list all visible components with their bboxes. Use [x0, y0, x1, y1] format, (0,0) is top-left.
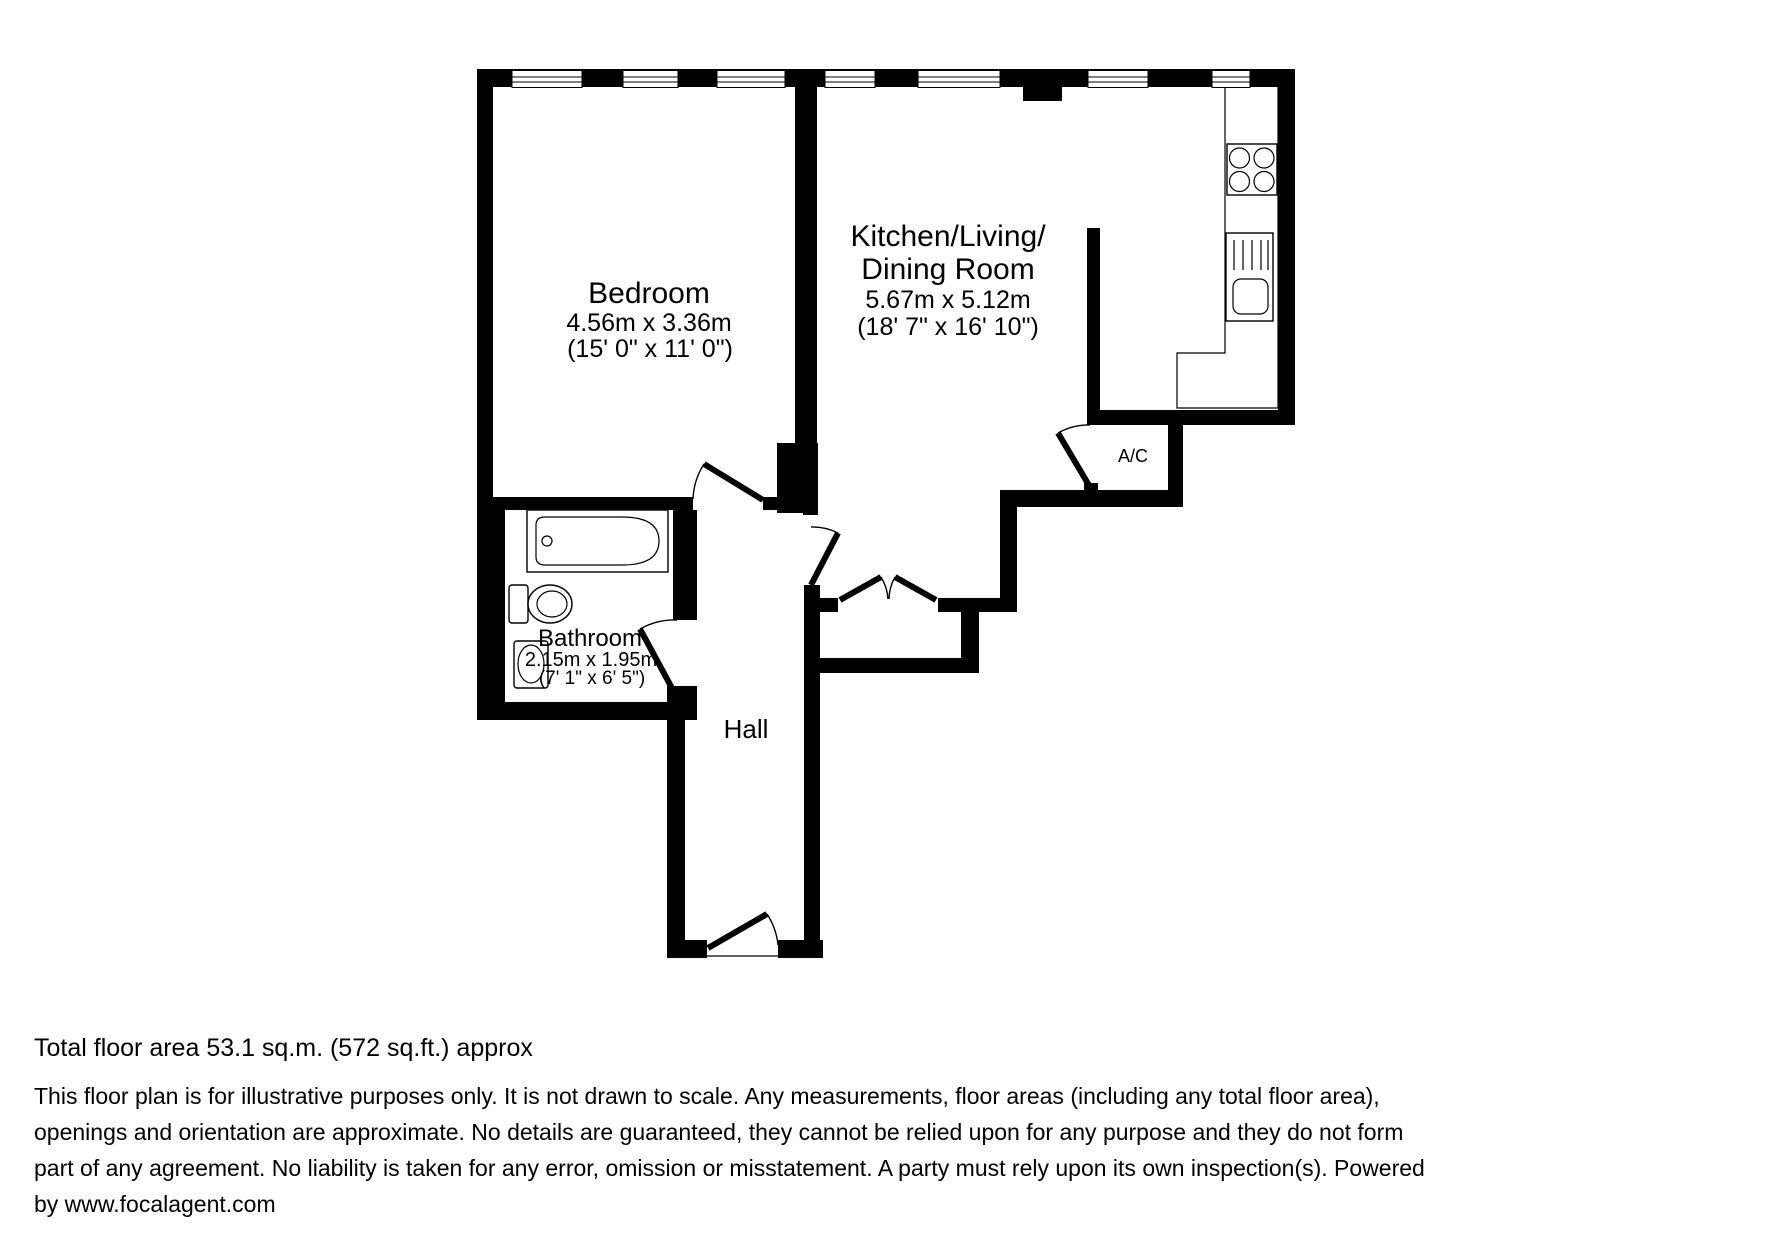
kitchen-name-line1: Kitchen/Living/ — [850, 220, 1046, 253]
hall-label: Hall — [724, 714, 769, 744]
wall-hall-bottom-left — [667, 940, 707, 958]
bedroom-imperial: (15' 0" x 11' 0") — [567, 335, 733, 363]
bathtub-icon — [527, 510, 668, 572]
disclaimer-line-2: openings and orientation are approximate… — [34, 1119, 1403, 1145]
total-floor-area: Total floor area 53.1 sq.m. (572 sq.ft.)… — [34, 1034, 533, 1062]
kitchen-name-line2: Dining Room — [861, 253, 1034, 286]
bathroom-imperial: (7' 1" x 6' 5") — [539, 668, 645, 689]
ac-label: A/C — [1118, 446, 1148, 466]
ac-door — [1058, 425, 1090, 487]
bedroom-name: Bedroom — [588, 277, 710, 310]
wall-left-bathroom — [477, 497, 505, 720]
disclaimer-line-1: This floor plan is for illustrative purp… — [34, 1083, 1380, 1109]
kitchen-imperial: (18' 7" x 16' 10") — [857, 313, 1039, 341]
wall-ac-top — [1100, 410, 1295, 425]
bedroom-label: Bedroom 4.56m x 3.36m (15' 0" x 11' 0") — [566, 277, 733, 363]
wall-bathroom-bottom — [477, 702, 697, 720]
window-4 — [825, 71, 875, 88]
disclaimer-line-3: part of any agreement. No liability is t… — [34, 1155, 1425, 1181]
window-2 — [623, 71, 678, 88]
window-1 — [512, 71, 582, 88]
hall-kitchen-door — [811, 527, 838, 585]
wall-hall-right — [804, 585, 820, 958]
bathroom-label: Bathroom 2.15m x 1.95m (7' 1" x 6' 5") — [525, 625, 657, 689]
hob-icon — [1227, 144, 1277, 195]
wall-double-door-left-jamb — [820, 598, 838, 612]
wall-left-upper — [477, 69, 493, 497]
wall-hall-right-stub — [803, 500, 818, 515]
entrance-door — [707, 914, 778, 956]
bedroom-door — [693, 464, 763, 500]
wall-top-pillar — [1023, 87, 1062, 101]
toilet-icon — [509, 585, 572, 623]
wall-bedroom-door-jamb — [763, 497, 777, 510]
wall-kitchen-partial — [1087, 228, 1100, 425]
wall-double-door-right-jamb — [938, 598, 962, 612]
kitchen-sink-icon — [1226, 233, 1273, 321]
kitchen-metric: 5.67m x 5.12m — [865, 286, 1030, 314]
bedroom-metric: 4.56m x 3.36m — [566, 309, 731, 337]
wall-step-vertical-upper — [1000, 490, 1017, 612]
double-doors — [840, 577, 936, 600]
wall-bedroom-kitchen-divider — [795, 87, 817, 443]
window-6 — [1088, 71, 1148, 88]
wall-ac-bottom — [1000, 490, 1183, 507]
wall-hall-left — [667, 702, 685, 958]
wall-bathroom-top — [477, 497, 693, 510]
kitchen-label: Kitchen/Living/ Dining Room 5.67m x 5.12… — [850, 220, 1046, 341]
wall-right-outer — [1278, 69, 1295, 425]
wall-bathroom-right — [673, 510, 697, 620]
bathroom-name: Bathroom — [538, 625, 642, 652]
window-5 — [918, 71, 1000, 88]
wall-kitchen-bottom — [818, 658, 979, 673]
footer: Total floor area 53.1 sq.m. (572 sq.ft.)… — [34, 1034, 1425, 1217]
floorplan-canvas: Bedroom 4.56m x 3.36m (15' 0" x 11' 0") … — [0, 0, 1771, 1239]
window-3 — [717, 71, 785, 88]
wall-top — [477, 69, 1295, 87]
wall-ac-right — [1168, 425, 1183, 507]
disclaimer-line-4: by www.focalagent.com — [34, 1191, 276, 1217]
window-7 — [1212, 71, 1250, 88]
